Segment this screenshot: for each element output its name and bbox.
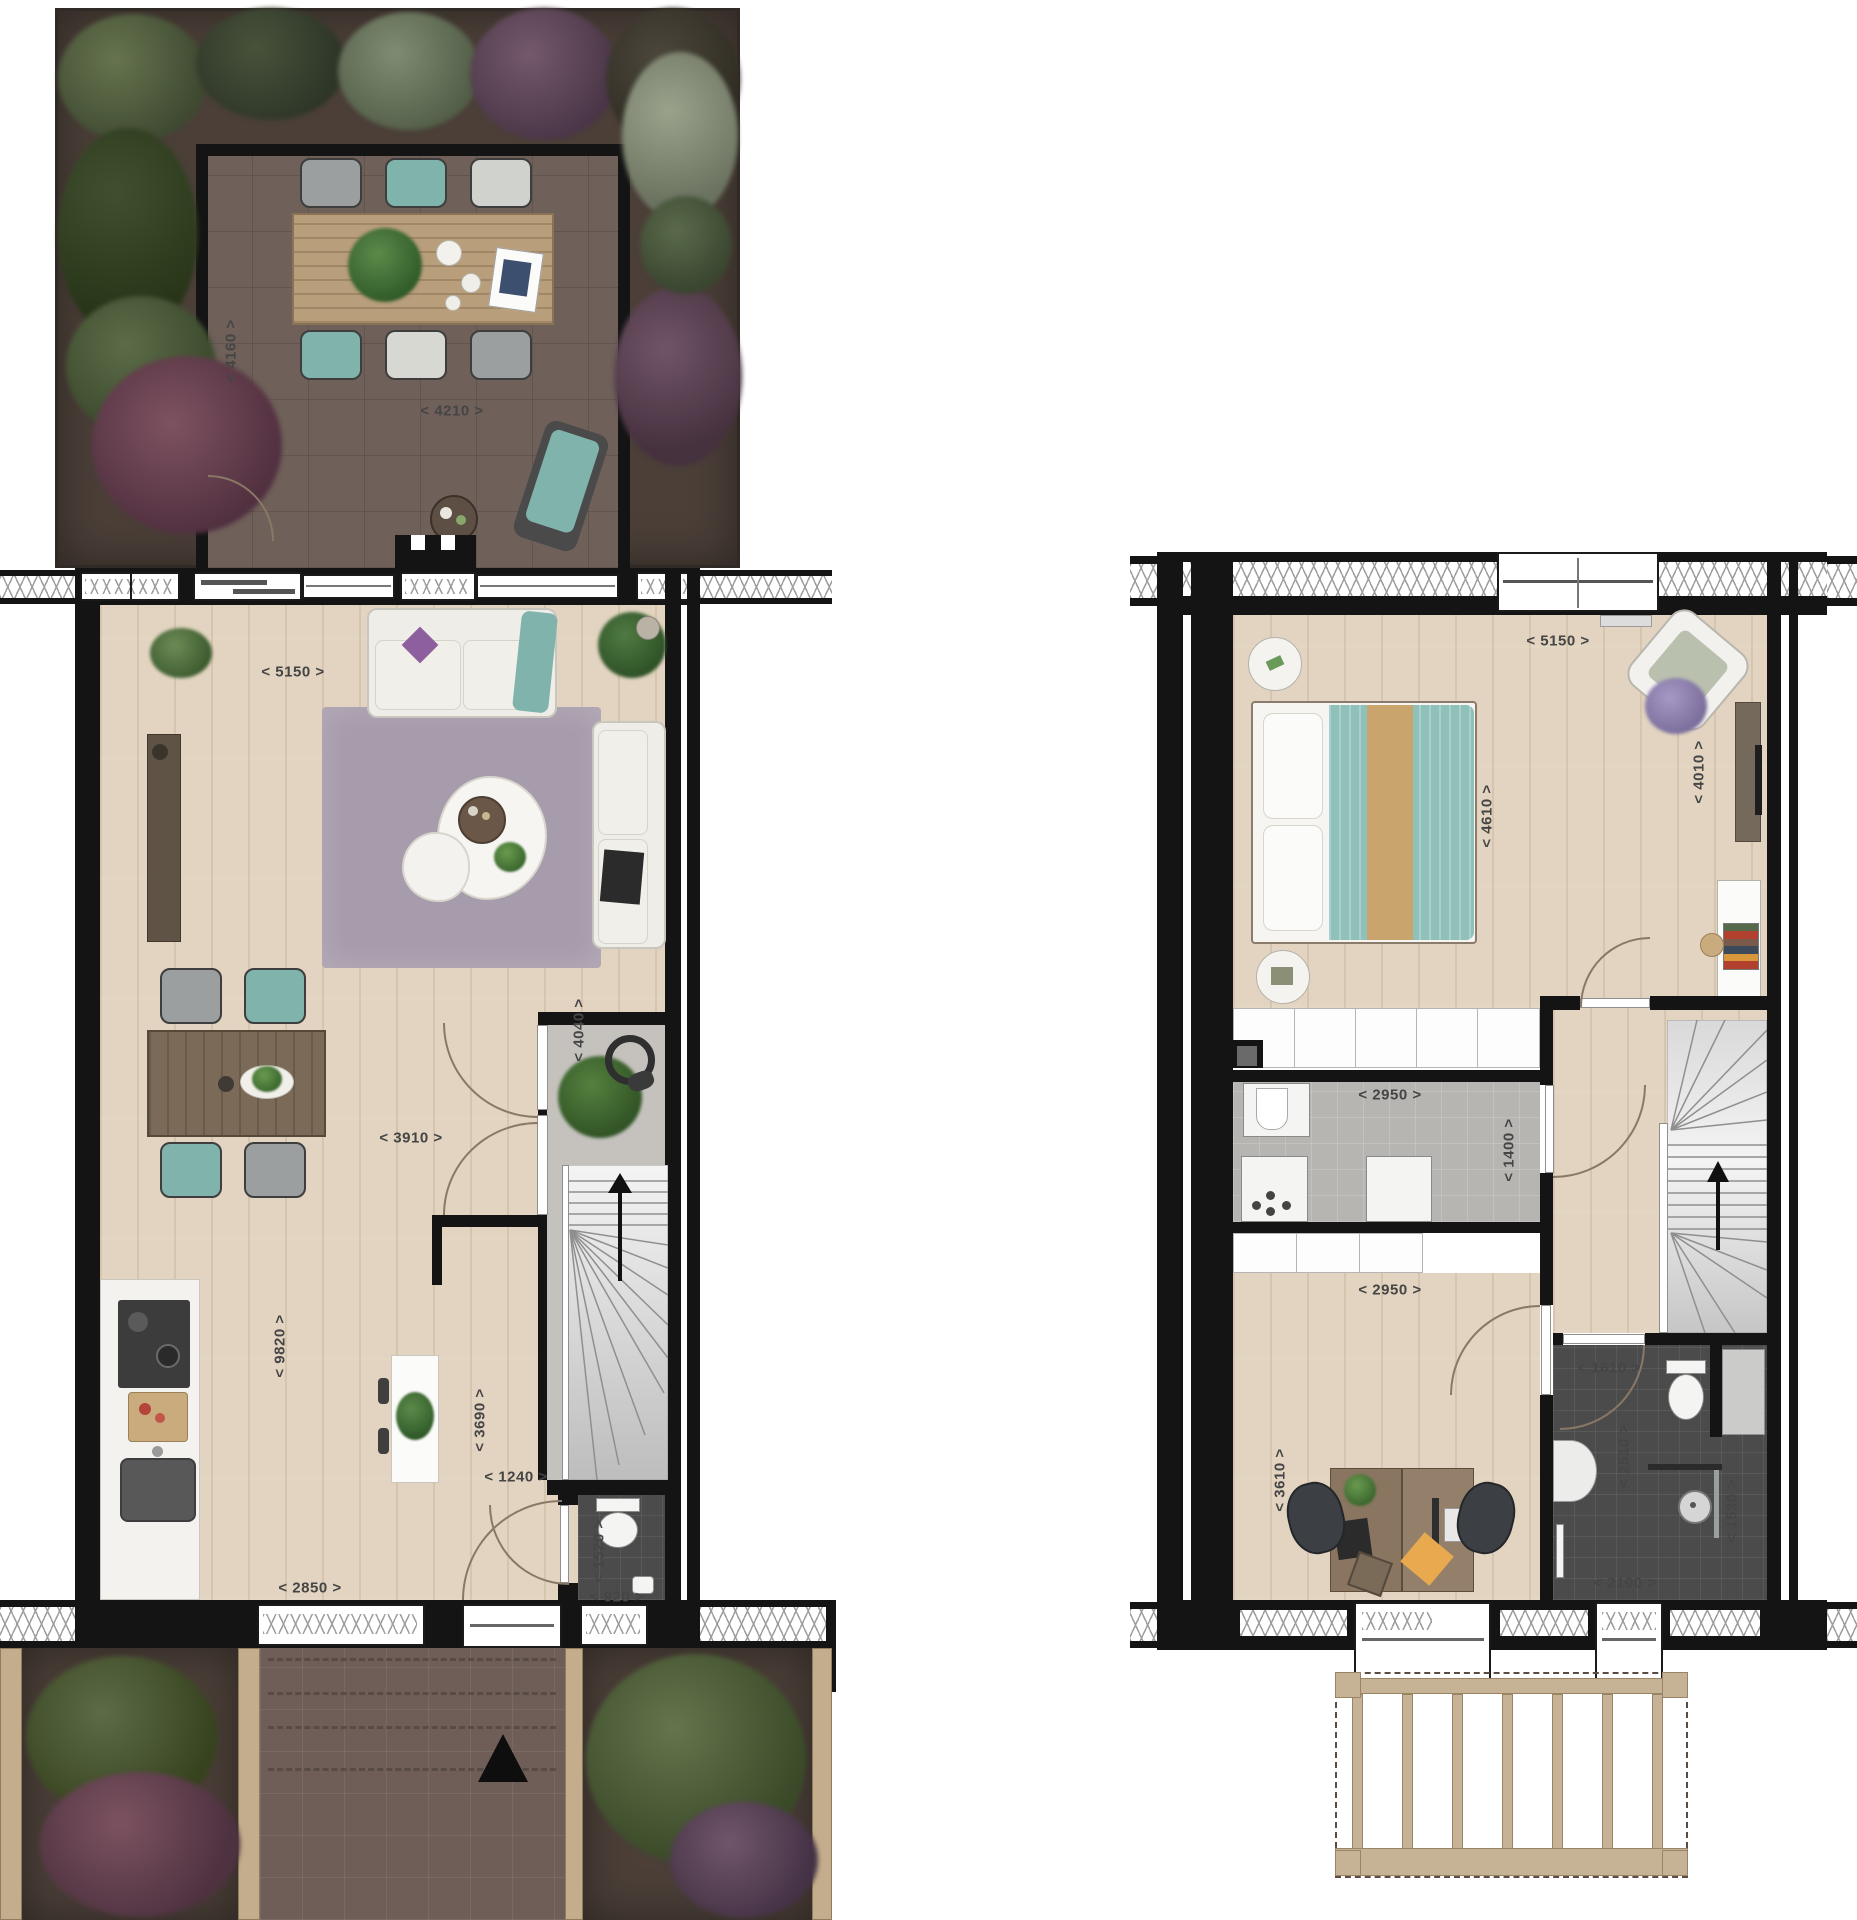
front-garden-bush — [670, 1802, 818, 1918]
plate — [436, 240, 462, 266]
party-wall-continuation — [1130, 1602, 1157, 1609]
dining-table — [147, 1030, 326, 1137]
fixed-glass — [476, 574, 619, 599]
wc-cistern — [596, 1498, 640, 1512]
pergola-slat — [1602, 1694, 1613, 1850]
dim-utility-width: < 2950 > — [1358, 1087, 1421, 1104]
island-stool — [378, 1378, 389, 1404]
shower-screen — [1714, 1470, 1719, 1538]
left-party-wall-inner — [1191, 552, 1233, 1650]
planter-edge — [0, 1648, 22, 1920]
facade-hatch — [1670, 1610, 1760, 1636]
rear-wall-line — [1157, 596, 1827, 615]
wc-top-wall — [547, 1480, 668, 1495]
garden-bush — [614, 286, 742, 466]
utility-top-wall — [1233, 1070, 1540, 1082]
party-wall-continuation — [0, 598, 75, 604]
party-wall-hatch — [1130, 564, 1157, 598]
kitchen-sink — [120, 1458, 196, 1522]
plate — [461, 273, 481, 293]
rear-window-left — [80, 572, 180, 601]
party-wall-hatch — [700, 576, 832, 598]
party-wall-hatch — [1827, 564, 1857, 598]
front-door — [462, 1604, 562, 1648]
sofa-two-seat — [367, 608, 557, 718]
plant-pot — [636, 616, 660, 640]
coffee-table-small — [402, 832, 470, 902]
wardrobe-side-wall — [1540, 1010, 1553, 1070]
dim-terrace-width: < 4210 > — [420, 403, 483, 420]
pergola-slat — [1352, 1694, 1363, 1850]
party-wall-continuation — [700, 1641, 832, 1648]
hall-partition-wall — [538, 1215, 547, 1480]
closet-corner-wall — [432, 1215, 538, 1227]
planter-edge — [238, 1648, 260, 1920]
niche-wall — [1710, 1345, 1722, 1437]
cup — [440, 507, 452, 519]
chimney-notch — [441, 535, 455, 550]
path-dashes — [268, 1658, 556, 1661]
party-wall-continuation — [1827, 598, 1857, 606]
study-cabinet-row — [1233, 1233, 1423, 1273]
entrance-arrow — [478, 1734, 528, 1782]
dim-bedroom-depth: < 4610 > — [1479, 784, 1496, 847]
party-wall-continuation — [1130, 556, 1157, 564]
terrace-chair — [385, 158, 447, 208]
laptop — [600, 849, 644, 904]
path-dashes — [268, 1726, 556, 1729]
pergola-slat — [1652, 1694, 1663, 1850]
front-garden-bush — [40, 1772, 240, 1917]
facade-hatch — [1240, 1610, 1347, 1636]
shower-partition — [1648, 1464, 1722, 1470]
pillow — [1263, 825, 1323, 931]
pergola-post — [1335, 1850, 1361, 1876]
towel-radiator — [1556, 1524, 1564, 1578]
garden-bush — [196, 8, 346, 120]
dim-bathroom-width: < 1610 > — [1577, 1360, 1640, 1377]
dim-floor-length: < 9820 > — [272, 1314, 289, 1377]
dining-chair — [244, 968, 306, 1024]
magazine-cover — [499, 259, 531, 297]
bedroom-wall — [1650, 996, 1767, 1010]
party-wall-hatch — [0, 576, 75, 598]
island-plant — [396, 1392, 434, 1440]
rear-wall-line — [1157, 552, 1827, 562]
bathroom-top-wall — [1553, 1333, 1563, 1345]
left-exterior-wall — [75, 601, 100, 1600]
pergola-post — [1335, 1672, 1361, 1698]
party-wall-continuation — [1130, 1641, 1157, 1648]
pergola-slat — [1402, 1694, 1413, 1850]
cutting-board — [128, 1392, 188, 1442]
pergola-top-beam — [1335, 1678, 1688, 1694]
terrace-wall-top — [196, 144, 630, 156]
garden-bush — [640, 196, 732, 294]
window-vent — [1600, 615, 1652, 627]
dim-study-depth: < 3610 > — [1272, 1448, 1289, 1511]
facade-hatch — [1500, 1610, 1588, 1636]
garden-bush — [622, 52, 738, 220]
hall-door-leaf — [537, 1025, 548, 1110]
planter-edge — [565, 1648, 583, 1920]
terrace-chair — [300, 158, 362, 208]
right-wall-outer — [1789, 552, 1798, 1650]
basket — [1700, 933, 1724, 957]
bathroom-niche — [1722, 1349, 1765, 1435]
shower-head — [1678, 1490, 1712, 1524]
garden-bush — [470, 8, 618, 140]
garden-bush — [58, 14, 208, 142]
bowl — [218, 1076, 234, 1092]
study-door-leaf — [1541, 1305, 1551, 1395]
bed-runner — [1367, 705, 1413, 940]
pillow — [1263, 713, 1323, 819]
table-plant — [348, 228, 422, 302]
path-dashes — [268, 1692, 556, 1695]
utility-bottom-wall — [1233, 1222, 1553, 1233]
dining-chair — [160, 1142, 222, 1198]
pergola-slat — [1452, 1694, 1463, 1850]
bathroom-top-wall — [1645, 1333, 1767, 1345]
dim-corridor-width: < 1240 > — [484, 1469, 547, 1486]
table-plant — [494, 842, 526, 872]
cooktop — [118, 1300, 190, 1388]
tv-screen — [1755, 745, 1762, 815]
party-wall-hatch — [1130, 1609, 1157, 1641]
dining-chair — [160, 968, 222, 1024]
dim-corridor-depth: < 3690 > — [472, 1388, 489, 1451]
party-wall-continuation — [700, 598, 832, 604]
bed — [1251, 701, 1477, 944]
pergola-post — [1662, 1672, 1688, 1698]
dim-utility-depth: < 1400 > — [1501, 1118, 1518, 1181]
fixed-glass — [302, 574, 395, 599]
island-stool — [378, 1428, 389, 1454]
right-wall-inner — [1767, 552, 1781, 1650]
hall-partition-wall — [538, 1012, 547, 1025]
pergola-post — [1662, 1850, 1688, 1876]
stair-railing — [562, 1165, 569, 1480]
study-right-wall — [1540, 1233, 1553, 1305]
dim-bathroom-depth: < 2510 > — [1616, 1424, 1633, 1487]
bathroom-door-leaf — [1563, 1334, 1645, 1344]
dim-bedroom-width: < 5150 > — [1526, 633, 1589, 650]
dining-chair — [244, 1142, 306, 1198]
closet-door-leaf — [537, 1115, 548, 1215]
utility-cabinet — [1241, 1156, 1308, 1222]
pergola-slat — [1502, 1694, 1513, 1850]
throw-blanket-purple — [1645, 678, 1707, 734]
dim-shower-depth: < 1530 > — [1724, 1479, 1741, 1542]
rear-window-center — [400, 572, 476, 601]
kitchen-window — [257, 1604, 425, 1646]
wardrobe — [1233, 1008, 1540, 1068]
party-wall-continuation — [1827, 556, 1857, 564]
serving-tray — [458, 796, 506, 844]
utility-right-wall — [1540, 1173, 1553, 1222]
dim-living-depth: < 4040 > — [571, 998, 588, 1061]
study-right-wall — [1540, 1395, 1553, 1600]
pergola-bottom-beam — [1335, 1848, 1688, 1876]
plate — [445, 295, 461, 311]
magazine — [488, 247, 544, 313]
dim-study-width: < 2950 > — [1358, 1282, 1421, 1299]
party-wall-hatch — [1827, 1609, 1857, 1641]
teal-throw — [512, 610, 558, 713]
dim-living-width: < 5150 > — [261, 664, 324, 681]
washing-machine — [1366, 1156, 1432, 1222]
party-wall-continuation — [1827, 1641, 1857, 1648]
terrace-chair — [385, 330, 447, 380]
party-wall-hatch — [0, 1607, 75, 1641]
nightstand — [1256, 950, 1310, 1004]
utility-right-wall — [1540, 1070, 1553, 1085]
dim-dining-width: < 3910 > — [379, 1130, 442, 1147]
chimney-notch — [411, 535, 425, 550]
dim-terrace-depth: < 4160 > — [223, 319, 240, 382]
party-wall-continuation — [700, 1600, 832, 1607]
desk-plant — [1344, 1474, 1376, 1506]
bedroom-wall — [1540, 996, 1580, 1010]
toilet-cistern — [1666, 1360, 1706, 1374]
garden-bush — [338, 12, 480, 130]
dim-wc-depth: < 1520 > — [591, 1519, 608, 1582]
terrace-chair — [470, 330, 532, 380]
dim-bedroom-depth-right: < 4010 > — [1691, 740, 1708, 803]
pergola-slat — [1552, 1694, 1563, 1850]
sliding-door — [193, 572, 302, 601]
dim-bathroom-width-lower: < 2100 > — [1593, 1575, 1656, 1592]
party-wall-continuation — [0, 1641, 75, 1648]
terrace-chair — [470, 158, 532, 208]
corner-plant — [150, 628, 212, 678]
party-wall-continuation — [1827, 1602, 1857, 1609]
terrace-chair — [300, 330, 362, 380]
table-plant — [252, 1066, 282, 1092]
staircase-upper — [1667, 1020, 1767, 1333]
front-path — [260, 1648, 565, 1920]
closet-corner-wall — [432, 1215, 442, 1285]
faucet — [152, 1446, 163, 1457]
cup — [152, 744, 168, 760]
wardrobe-corner-unit — [1237, 1046, 1257, 1066]
floorplan-canvas: < 4160 > < 4210 > < 5150 > < 4040 > < 39… — [0, 0, 1857, 1920]
dim-wc-width: < 920 > — [590, 1589, 644, 1606]
stair-railing — [1659, 1123, 1668, 1333]
wc-window — [580, 1604, 648, 1646]
party-wall-hatch — [700, 1607, 832, 1641]
sofa-side — [592, 721, 666, 949]
tv-sideboard — [147, 734, 181, 942]
bowl — [456, 515, 466, 525]
toilet-bowl — [1668, 1374, 1704, 1420]
party-wall-continuation — [0, 1600, 75, 1607]
right-party-wall-outer — [687, 568, 700, 1600]
planter-edge — [812, 1648, 832, 1920]
dim-kitchen-width: < 2850 > — [278, 1580, 341, 1597]
books-stack — [1723, 923, 1759, 970]
utility-sink-unit — [1243, 1083, 1310, 1137]
nightstand — [1248, 637, 1302, 691]
bedroom-window — [1497, 552, 1659, 612]
staircase-ground — [567, 1165, 668, 1480]
left-party-wall-outer — [1157, 552, 1183, 1650]
hall-wall-top — [547, 1012, 668, 1025]
rear-wall-hatch — [1157, 562, 1827, 596]
party-wall-continuation — [1130, 598, 1157, 606]
